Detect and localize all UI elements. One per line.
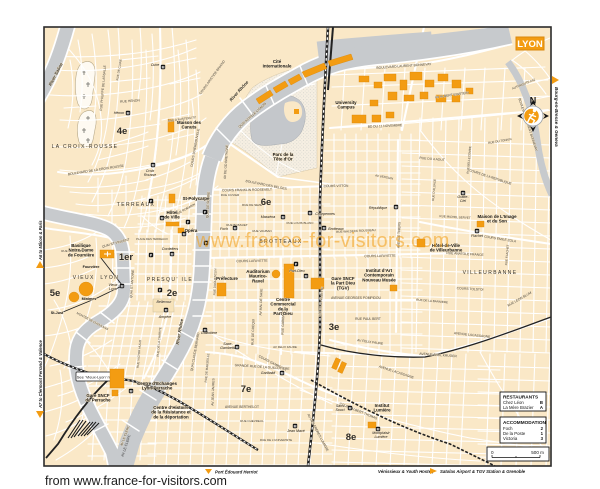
svg-text:5e: 5e	[50, 288, 61, 299]
svg-text:Ciel: Ciel	[460, 199, 466, 203]
svg-text:Charpennes: Charpennes	[315, 212, 335, 216]
svg-text:Nouveau Musée: Nouveau Musée	[362, 277, 396, 282]
svg-text:PLACE DES TERREAUX: PLACE DES TERREAUX	[136, 237, 168, 241]
svg-text:from www.france-for-visitors.c: from www.france-for-visitors.com	[45, 474, 227, 488]
svg-text:RUE LOUIS BLANC: RUE LOUIS BLANC	[286, 221, 314, 225]
svg-text:M: M	[171, 253, 174, 257]
svg-text:6e: 6e	[261, 197, 272, 208]
svg-text:Bourg-en-Bresse & Geneva: Bourg-en-Bresse & Geneva	[554, 87, 559, 147]
svg-text:AVENUE BERTHELOT: AVENUE BERTHELOT	[225, 405, 259, 409]
svg-text:Vénissieux & Youth Hostel,: Vénissieux & Youth Hostel,	[378, 469, 433, 474]
svg-text:A7 to Clermont Ferrand & Valen: A7 to Clermont Ferrand & Valence	[38, 340, 43, 409]
svg-text:Lumière: Lumière	[375, 435, 388, 439]
svg-text:M: M	[162, 66, 165, 70]
svg-text:Victoria: Victoria	[503, 436, 518, 441]
svg-text:Lyon-Perrache: Lyon-Perrache	[142, 386, 173, 391]
svg-text:(TGV): (TGV)	[337, 285, 349, 290]
svg-text:ACCOMMODATION: ACCOMMODATION	[503, 420, 546, 425]
svg-text:M: M	[165, 309, 168, 313]
svg-text:A6 to Mâcon & Paris: A6 to Mâcon & Paris	[38, 220, 43, 261]
svg-text:Satolas Airport & TGV Station: Satolas Airport & TGV Station & Grenoble	[440, 469, 526, 474]
svg-text:M: M	[282, 216, 285, 220]
svg-text:Masséna: Masséna	[261, 215, 276, 219]
svg-text:M: M	[236, 346, 239, 350]
svg-text:de Perrache: de Perrache	[85, 398, 111, 403]
svg-text:RUE DE SEZE: RUE DE SEZE	[242, 203, 262, 207]
svg-text:de Fourvière: de Fourvière	[68, 252, 95, 257]
svg-text:Cuire: Cuire	[151, 63, 160, 67]
svg-text:7e: 7e	[241, 384, 252, 395]
svg-text:VILLEURBANNE: VILLEURBANNE	[463, 270, 518, 276]
svg-text:M: M	[161, 217, 164, 221]
svg-text:Jean Macé: Jean Macé	[286, 429, 305, 433]
svg-text:M: M	[309, 212, 312, 216]
svg-text:Canuts: Canuts	[182, 125, 197, 130]
svg-text:Part-Dieu: Part-Dieu	[289, 269, 304, 273]
svg-text:M: M	[305, 275, 308, 279]
svg-text:AV FELIX FAURE: AV FELIX FAURE	[273, 345, 297, 349]
svg-text:www.france-for-visitors.com: www.france-for-visitors.com	[195, 230, 450, 252]
svg-text:de Ville: de Ville	[164, 215, 180, 220]
svg-text:M: M	[130, 390, 133, 394]
svg-text:M: M	[127, 112, 130, 116]
svg-text:Lumière: Lumière	[373, 408, 391, 413]
svg-text:M: M	[204, 329, 207, 333]
svg-text:Part Dieu: Part Dieu	[273, 311, 293, 316]
svg-text:Campus: Campus	[337, 105, 355, 110]
svg-text:1er: 1er	[119, 252, 134, 263]
svg-text:Minimes: Minimes	[82, 297, 97, 301]
svg-text:RUE CHEVREUL: RUE CHEVREUL	[240, 419, 264, 423]
svg-text:Bellecour: Bellecour	[157, 300, 173, 304]
svg-text:2e: 2e	[167, 288, 178, 299]
svg-text:LA CROIX-ROUSSE: LA CROIX-ROUSSE	[52, 144, 119, 150]
svg-text:500 m: 500 m	[531, 450, 544, 455]
svg-text:RUE DE L’UNIVERSITE: RUE DE L’UNIVERSITE	[260, 438, 292, 442]
svg-text:COURS VITTON: COURS VITTON	[324, 184, 350, 188]
svg-text:COURS LAFAYETTE: COURS LAFAYETTE	[364, 254, 396, 259]
svg-text:N: N	[530, 96, 537, 106]
svg-text:Hénon: Hénon	[114, 111, 125, 115]
svg-text:Cordeliers: Cordeliers	[162, 247, 179, 251]
svg-text:RUE PAUL BERT: RUE PAUL BERT	[355, 317, 381, 321]
svg-text:M: M	[152, 164, 155, 168]
svg-text:A: A	[540, 405, 543, 410]
svg-text:M: M	[476, 230, 479, 234]
svg-text:et du Son: et du Son	[487, 219, 507, 224]
svg-text:Préfecture: Préfecture	[216, 276, 238, 281]
svg-text:RUE CUVIER: RUE CUVIER	[221, 193, 240, 197]
svg-text:St-Just: St-Just	[51, 311, 64, 315]
svg-text:Gambetta: Gambetta	[220, 346, 236, 350]
svg-text:Tête d’Or: Tête d’Or	[273, 157, 293, 162]
svg-text:Internationale: Internationale	[263, 64, 292, 69]
svg-text:M: M	[462, 192, 465, 196]
svg-text:Souci: Souci	[336, 408, 345, 412]
svg-text:M: M	[281, 372, 284, 376]
svg-text:VIEUX LYON: VIEUX LYON	[73, 275, 119, 281]
svg-text:4e: 4e	[117, 126, 128, 137]
svg-text:Fourvière: Fourvière	[83, 265, 100, 269]
svg-text:Ampère: Ampère	[158, 315, 172, 319]
svg-text:St-Polycarpe: St-Polycarpe	[183, 196, 210, 201]
svg-text:PRESQU’ ILE: PRESQU’ ILE	[147, 277, 193, 283]
svg-text:Lyon: Lyon	[109, 287, 117, 291]
svg-text:RESTAURANTS: RESTAURANTS	[503, 395, 538, 400]
svg-text:M: M	[377, 428, 380, 432]
svg-text:Rousse: Rousse	[144, 173, 156, 177]
svg-text:M: M	[395, 206, 398, 210]
svg-text:AVENUE GEORGES POMPIDOU: AVENUE GEORGES POMPIDOU	[331, 296, 381, 300]
svg-text:M: M	[349, 407, 352, 411]
svg-text:République: République	[369, 206, 387, 210]
svg-text:3e: 3e	[329, 322, 340, 333]
svg-text:COURS LAFAYETTE: COURS LAFAYETTE	[236, 259, 268, 264]
svg-text:Garibaldi: Garibaldi	[261, 371, 276, 375]
svg-text:0: 0	[491, 450, 494, 455]
svg-text:de la déportation: de la déportation	[153, 414, 189, 419]
svg-text:M: M	[183, 233, 186, 237]
svg-text:Ravel: Ravel	[252, 278, 264, 283]
svg-text:8e: 8e	[346, 432, 357, 443]
svg-text:Flachet: Flachet	[471, 234, 484, 238]
svg-text:M: M	[121, 285, 124, 289]
svg-text:M: M	[294, 425, 297, 429]
svg-text:LYON: LYON	[517, 39, 543, 50]
svg-text:La Mère Brazier: La Mère Brazier	[503, 405, 534, 410]
